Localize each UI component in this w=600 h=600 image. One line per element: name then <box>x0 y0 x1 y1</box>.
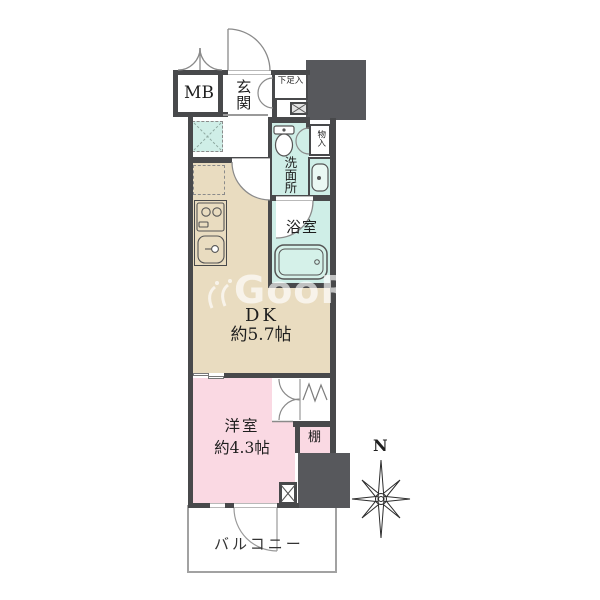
fridge-space-icon <box>193 165 225 195</box>
label-meter-box: MB <box>179 84 219 104</box>
wall-segment <box>268 117 272 288</box>
label-shelf: 棚 <box>308 431 321 446</box>
pillar-top-right <box>306 60 366 120</box>
balcony-door-opening <box>234 503 277 508</box>
label-bathroom: 浴室 <box>286 219 318 236</box>
duct-box <box>290 102 308 115</box>
label-compass-north: N <box>373 437 388 455</box>
bath-door-opening <box>276 196 313 201</box>
shoe-cabinet-door-icon <box>258 78 273 108</box>
label-entrance: 玄関 <box>234 79 251 111</box>
watermark: GooRoom <box>234 268 445 312</box>
label-western-room-size: 約4.3帖 <box>196 440 288 458</box>
pillar-bottom-right <box>298 453 350 508</box>
wall-segment <box>173 112 228 117</box>
mb-double-door-icon <box>178 48 222 70</box>
sliding-door-leaf <box>193 373 209 376</box>
front-door-icon <box>228 29 270 71</box>
label-western-room: 洋室 <box>208 418 276 436</box>
pipe-space-box <box>279 482 297 505</box>
balcony-window-opening <box>210 503 225 508</box>
wall-segment <box>188 117 193 508</box>
hall-dk-door-opening <box>232 158 270 163</box>
label-washroom: 洗面所 <box>282 156 296 194</box>
label-small-closet: 物入 <box>315 130 325 147</box>
wash-basin-cabinet <box>308 157 332 197</box>
entrance-step-line <box>223 114 268 116</box>
label-balcony: バルコニー <box>214 536 304 553</box>
label-shoe-cabinet: 下足入 <box>275 77 306 87</box>
compass-rose-icon <box>352 460 410 538</box>
kitchen-counter <box>194 200 227 266</box>
room-fill-closet <box>272 378 330 421</box>
wall-segment <box>173 70 178 117</box>
label-dk-size: 約5.7帖 <box>211 326 311 346</box>
wall-segment <box>268 117 310 123</box>
sliding-door-leaf <box>208 376 224 379</box>
front-door-opening <box>228 70 271 75</box>
floorplan-canvas: MB 玄関 下足入 物入 洗面所 浴室 DK 約5.7帖 洋室 約4.3帖 棚 … <box>0 0 600 600</box>
wall-segment <box>295 421 300 453</box>
washer-space-icon <box>192 121 223 152</box>
